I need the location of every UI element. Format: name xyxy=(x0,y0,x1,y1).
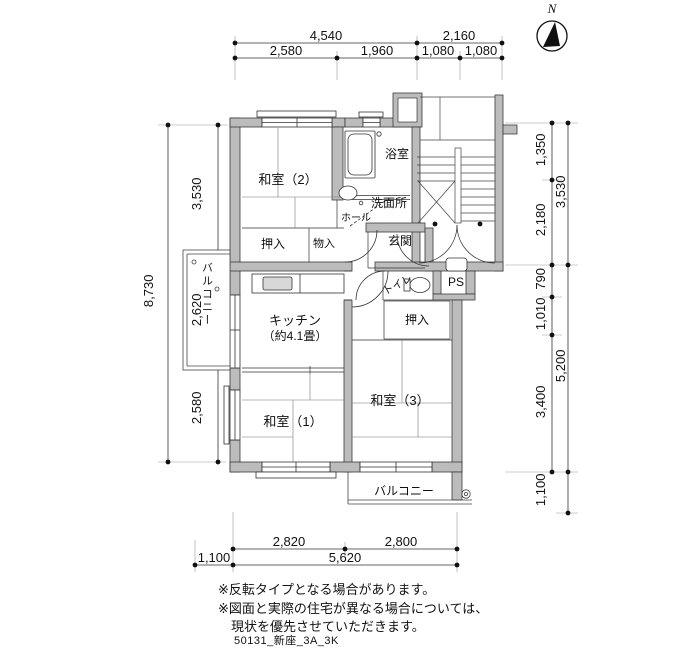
room-label-bath: 浴室 xyxy=(377,148,417,161)
washroom-door xyxy=(345,230,377,262)
north-label: N xyxy=(543,2,561,16)
balcony-drain xyxy=(462,490,470,498)
bathtub-inner xyxy=(348,134,372,175)
note-line-3: 現状を優先させていただきます。 xyxy=(231,620,425,634)
north-arrow xyxy=(537,21,567,51)
room-label-genkan: 玄関 xyxy=(376,235,424,248)
room-label-washroom: 洗面所 xyxy=(361,197,417,210)
dim-top-1960: 1,960 xyxy=(347,44,407,58)
stair-newel-dot xyxy=(478,222,483,227)
room-label-closet-right: 押入 xyxy=(395,314,439,327)
room-label-washitsu3: 和室（3） xyxy=(355,394,445,408)
drawing-code: 50131_新座_3A_3K xyxy=(234,636,339,648)
room-label-balcony-left: バルコニー xyxy=(200,262,212,366)
dim-bottom-2800: 2,800 xyxy=(371,535,431,549)
dim-right-1010: 1,010 xyxy=(534,289,548,339)
room-label-kitchen: キッチン xyxy=(255,314,335,328)
dim-right-1350: 1,350 xyxy=(534,125,548,175)
room-label-washitsu1: 和室（1） xyxy=(248,415,338,429)
kitchen-sink xyxy=(263,277,292,290)
dim-right-3400: 3,400 xyxy=(534,377,548,427)
dim-left-2580: 2,580 xyxy=(190,383,204,433)
dim-top-4540: 4,540 xyxy=(296,29,356,43)
stair-newel-dot xyxy=(433,222,438,227)
floor-plan-page: 4,540 2,160 2,580 1,960 1,080 1,080 8,73… xyxy=(0,0,700,650)
entrance-double-door-right xyxy=(457,225,495,263)
bath-drain xyxy=(377,132,381,136)
dim-left-3530: 3,530 xyxy=(190,169,204,219)
stair-top-closet xyxy=(398,98,417,122)
dim-bottom-5620: 5,620 xyxy=(315,551,375,565)
washbasin xyxy=(339,186,357,200)
dim-top-2160: 2,160 xyxy=(429,29,489,43)
water-heater xyxy=(446,258,467,271)
dim-right-2180: 2,180 xyxy=(534,195,548,245)
note-line-2: ※図面と実際の住宅が異なる場合については、 xyxy=(218,602,488,616)
room-label-kitchen-size: （約4.1畳） xyxy=(245,330,345,343)
room-label-balcony-bottom: バルコニー xyxy=(364,485,444,498)
note-line-1: ※反転タイプとなる場合があります。 xyxy=(218,583,435,597)
room-label-hall: ホール xyxy=(336,214,376,225)
dim-bottom-2820: 2,820 xyxy=(259,535,319,549)
dim-right-5200: 5,200 xyxy=(554,341,568,391)
dim-top-2580: 2,580 xyxy=(256,44,316,58)
dim-bottom-1100: 1,100 xyxy=(190,551,238,565)
room-label-washitsu2: 和室（2） xyxy=(243,173,333,187)
dim-right-3530: 3,530 xyxy=(554,167,568,217)
room-label-closet-top: 押入 xyxy=(251,238,295,251)
dim-top-1080a: 1,080 xyxy=(414,44,462,58)
room-label-ps: PS xyxy=(441,276,471,289)
room-label-storage: 物入 xyxy=(304,239,344,251)
dim-left-8730: 8,730 xyxy=(142,266,156,316)
dim-top-1080b: 1,080 xyxy=(457,44,505,58)
dim-right-1100: 1,100 xyxy=(534,465,548,515)
staircase xyxy=(417,97,495,223)
